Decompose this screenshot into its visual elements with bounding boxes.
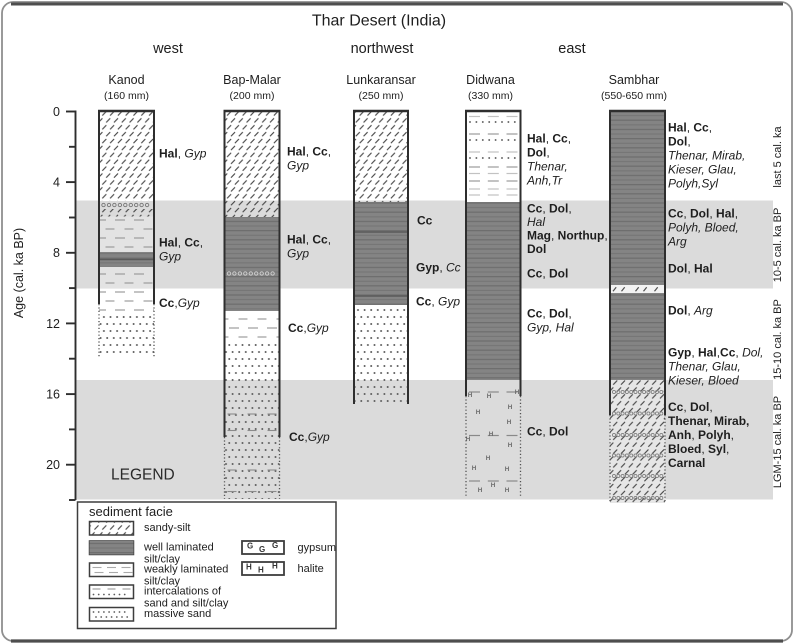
svg-text:H: H: [468, 392, 473, 399]
svg-text:H: H: [472, 465, 477, 472]
svg-text:Cc, Dol,: Cc, Dol,: [527, 202, 572, 216]
svg-text:Dol, Arg: Dol, Arg: [668, 304, 713, 318]
svg-text:(200 mm): (200 mm): [230, 90, 275, 102]
svg-text:Mag, Northup,: Mag, Northup,: [527, 229, 608, 243]
svg-text:H: H: [272, 562, 278, 571]
svg-text:LGM-15 cal. ka BP: LGM-15 cal. ka BP: [772, 396, 784, 488]
svg-text:G: G: [272, 541, 278, 550]
svg-text:H: H: [491, 482, 496, 489]
svg-text:(250 mm): (250 mm): [359, 90, 404, 102]
svg-text:H: H: [258, 566, 264, 575]
svg-text:Cc, Dol,: Cc, Dol,: [668, 400, 713, 414]
svg-text:Sambhar: Sambhar: [609, 73, 660, 87]
svg-text:Gyp, Hal,Cc, Dol,: Gyp, Hal,Cc, Dol,: [668, 346, 763, 360]
svg-text:Gyp, Hal: Gyp, Hal: [527, 321, 574, 335]
svg-text:Anh,Tr: Anh,Tr: [526, 174, 563, 188]
svg-text:(160 mm): (160 mm): [104, 90, 149, 102]
svg-text:Thenar, Mirab,: Thenar, Mirab,: [668, 414, 749, 428]
svg-text:Polyh,Syl: Polyh,Syl: [668, 177, 718, 191]
svg-text:Hal, Cc,: Hal, Cc,: [159, 236, 203, 250]
svg-text:Hal, Cc,: Hal, Cc,: [287, 145, 331, 159]
svg-text:H: H: [246, 563, 252, 572]
svg-text:15-10 cal. ka BP: 15-10 cal. ka BP: [772, 299, 784, 380]
svg-text:4: 4: [53, 176, 60, 190]
svg-text:Kanod: Kanod: [108, 73, 144, 87]
svg-text:(550-650 mm): (550-650 mm): [601, 90, 667, 102]
svg-text:Hal, Cc,: Hal, Cc,: [287, 233, 331, 247]
svg-text:20: 20: [46, 458, 60, 472]
svg-text:Cc,Gyp: Cc,Gyp: [159, 296, 200, 310]
svg-text:Bap-Malar: Bap-Malar: [223, 73, 281, 87]
svg-text:Cc, Dol,: Cc, Dol,: [527, 307, 572, 321]
svg-text:Hal, Gyp: Hal, Gyp: [159, 147, 207, 161]
svg-text:last 5 cal. ka: last 5 cal. ka: [772, 126, 784, 188]
svg-text:H: H: [505, 466, 510, 473]
svg-text:Gyp, Cc: Gyp, Cc: [416, 261, 461, 275]
svg-text:H: H: [489, 431, 494, 438]
svg-text:Anh, Polyh,: Anh, Polyh,: [668, 428, 734, 442]
svg-text:Dol: Dol: [527, 242, 546, 256]
svg-text:sediment facie: sediment facie: [89, 504, 173, 519]
svg-text:Kieser, Glau,: Kieser, Glau,: [668, 163, 737, 177]
svg-text:H: H: [515, 389, 520, 396]
svg-text:H: H: [508, 404, 513, 411]
svg-text:12: 12: [46, 317, 60, 331]
svg-text:Cc, Gyp: Cc, Gyp: [416, 295, 460, 309]
svg-text:weakly laminated: weakly laminated: [143, 564, 228, 576]
svg-text:Dol,: Dol,: [527, 146, 550, 160]
svg-text:halite: halite: [298, 563, 324, 575]
svg-text:intercalations of: intercalations of: [144, 586, 222, 598]
svg-text:(330 mm): (330 mm): [468, 90, 513, 102]
svg-text:Bloed, Syl,: Bloed, Syl,: [668, 442, 729, 456]
svg-text:Hal: Hal: [527, 215, 545, 229]
svg-text:sandy-silt: sandy-silt: [144, 522, 190, 534]
svg-text:H: H: [487, 393, 492, 400]
svg-text:Thenar, Mirab,: Thenar, Mirab,: [668, 149, 745, 163]
svg-text:Polyh, Bloed,: Polyh, Bloed,: [668, 221, 739, 235]
svg-text:H: H: [476, 409, 481, 416]
svg-text:Cc, Dol, Hal,: Cc, Dol, Hal,: [668, 207, 738, 221]
svg-text:16: 16: [46, 388, 60, 402]
svg-text:Cc, Dol: Cc, Dol: [527, 267, 568, 281]
svg-text:east: east: [558, 41, 585, 57]
svg-text:massive sand: massive sand: [144, 608, 211, 620]
svg-text:Thenar, Glau,: Thenar, Glau,: [668, 360, 741, 374]
svg-text:Dol,: Dol,: [668, 135, 691, 149]
svg-text:Cc,Gyp: Cc,Gyp: [289, 430, 330, 444]
svg-text:Dol, Hal: Dol, Hal: [668, 262, 713, 276]
svg-text:Age (cal. ka BP): Age (cal. ka BP): [12, 228, 26, 318]
svg-text:Gyp: Gyp: [287, 247, 309, 261]
svg-text:G: G: [259, 545, 265, 554]
svg-text:Arg: Arg: [667, 235, 687, 249]
svg-text:Cc: Cc: [417, 214, 433, 228]
svg-text:LEGEND: LEGEND: [111, 467, 175, 484]
svg-text:Gyp: Gyp: [287, 159, 309, 173]
svg-text:gypsum: gypsum: [298, 542, 337, 554]
svg-text:G: G: [247, 542, 253, 551]
svg-text:8: 8: [53, 246, 60, 260]
svg-text:H: H: [486, 455, 491, 462]
svg-text:west: west: [152, 41, 183, 57]
svg-text:H: H: [508, 442, 513, 449]
svg-text:H: H: [478, 487, 483, 494]
svg-text:Hal, Cc,: Hal, Cc,: [668, 121, 712, 135]
svg-text:Thar Desert (India): Thar Desert (India): [312, 13, 446, 30]
svg-text:10-5 cal. ka BP: 10-5 cal. ka BP: [772, 208, 784, 283]
svg-text:H: H: [507, 419, 512, 426]
svg-text:Thenar,: Thenar,: [527, 160, 568, 174]
svg-text:Lunkaransar: Lunkaransar: [346, 73, 416, 87]
svg-text:northwest: northwest: [351, 41, 414, 57]
svg-text:Cc, Dol: Cc, Dol: [527, 425, 568, 439]
svg-text:H: H: [505, 487, 510, 494]
svg-text:Carnal: Carnal: [668, 456, 705, 470]
svg-text:well laminated: well laminated: [143, 542, 214, 554]
svg-text:Kieser, Bloed: Kieser, Bloed: [668, 374, 739, 388]
svg-text:Cc,Gyp: Cc,Gyp: [288, 321, 329, 335]
svg-text:Hal, Cc,: Hal, Cc,: [527, 132, 571, 146]
svg-text:0: 0: [53, 105, 60, 119]
svg-text:Gyp: Gyp: [159, 250, 181, 264]
svg-text:Didwana: Didwana: [466, 73, 515, 87]
